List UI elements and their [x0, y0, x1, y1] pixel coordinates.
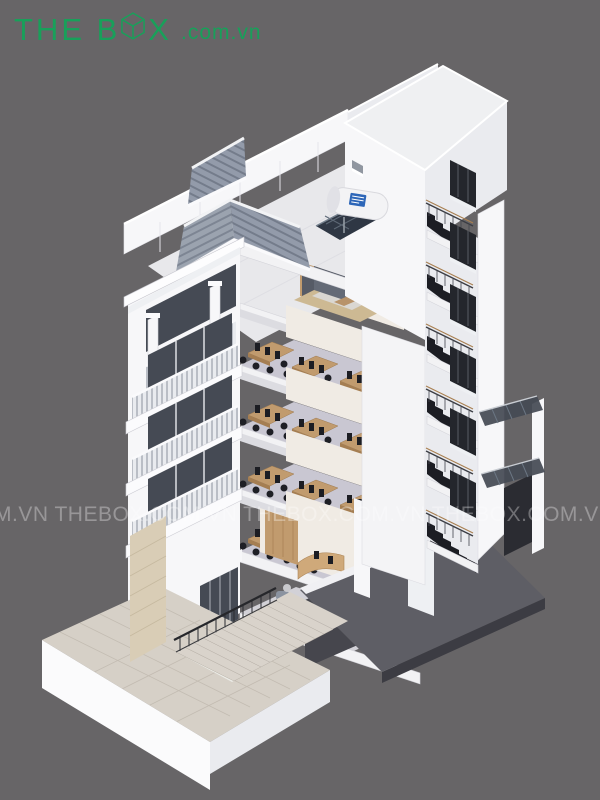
render-canvas: THE B X .com.vn M.VN THEBOX.COM.VN THEBO… — [0, 0, 600, 800]
watermark-text: M.VN THEBOX.COM.VN THEBOX.COM.VN THEBOX.… — [0, 503, 600, 527]
logo-text: X — [148, 14, 172, 45]
building-render — [0, 0, 600, 800]
thebox-logo: THE B X .com.vn — [14, 12, 262, 47]
logo-cube-icon — [121, 12, 145, 45]
logo-suffix: .com.vn — [181, 14, 262, 45]
stone-pier — [130, 516, 166, 662]
core-wall — [362, 326, 425, 585]
logo-text: THE B — [14, 14, 120, 45]
